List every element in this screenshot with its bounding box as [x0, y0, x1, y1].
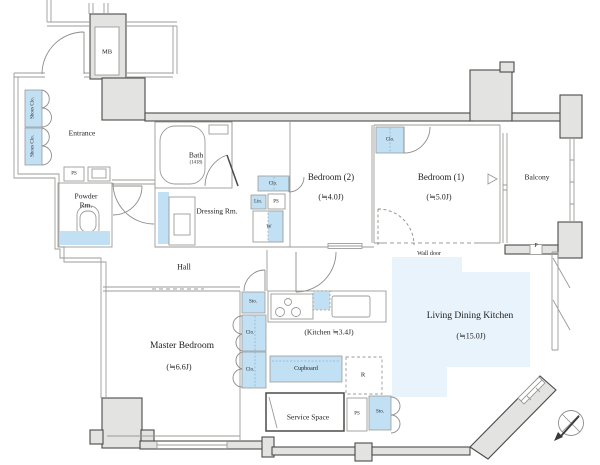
- storage-kitchen-door: [244, 270, 265, 291]
- bath-door-arc: [205, 155, 227, 186]
- label-ps-dressing: PS: [273, 200, 279, 205]
- label-powder-room-line2: Rm.: [80, 201, 93, 210]
- powder-door: [113, 186, 142, 215]
- label-storage-kitchen: Sto.: [249, 300, 257, 305]
- label-refrigerator: R: [361, 372, 366, 379]
- label-kitchen: (Kitchen ≒3.4J): [304, 328, 354, 337]
- label-ps-service: PS: [354, 412, 360, 417]
- label-closet-bedroom-1: Clo.: [386, 138, 394, 143]
- fixtures: [60, 125, 386, 394]
- floor-plan-drawing: EntrancePowderRm.BathDressing Rm.Bedroom…: [0, 0, 600, 465]
- bedroom-1-door: [378, 209, 414, 245]
- label-closet-master-1: Clo.: [246, 331, 254, 336]
- bath-shelf: [209, 125, 228, 134]
- label-linen: Lin.: [254, 200, 262, 205]
- powder-floor: [60, 231, 110, 245]
- label-bedroom-1-area: (≒5.0J): [426, 193, 451, 202]
- label-entrance: Entrance: [69, 129, 96, 138]
- closet-bedroom-1-door: [404, 127, 430, 153]
- shoes-closet-doors: [42, 90, 52, 165]
- label-bath-size: (1418): [190, 161, 203, 166]
- label-closet-dressing: Clo.: [269, 182, 277, 187]
- label-shoes-closet-1: Shoes Clo.: [31, 97, 36, 119]
- label-bath: Bath: [189, 151, 203, 160]
- north-arrow-compass-icon: [554, 411, 584, 442]
- label-powder-room-line1: Powder: [75, 192, 98, 201]
- label-master-bedroom: Master Bedroom: [150, 341, 215, 351]
- label-meter-box: MB: [102, 49, 113, 56]
- opening-direction-triangle-icon: [488, 174, 497, 184]
- entrance-door: [42, 32, 84, 74]
- label-balcony: Balcony: [525, 173, 550, 182]
- label-ldk-area: (≒15.0J): [456, 332, 485, 341]
- hall-door: [113, 183, 154, 224]
- ldk-door: [296, 252, 336, 292]
- kitchen-blue-unit: [313, 291, 330, 310]
- master-closet-doors: [233, 316, 242, 387]
- bedroom-1-balcony-window: [503, 133, 507, 243]
- label-bedroom-1: Bedroom (1): [418, 172, 464, 182]
- bath-door-leaf: [227, 155, 238, 186]
- label-bedroom-2: Bedroom (2): [308, 172, 354, 182]
- label-bedroom-2-area: (≒4.0J): [318, 193, 343, 202]
- vanity-sink: [174, 214, 190, 235]
- label-closet-master-2: Clo.: [246, 368, 254, 373]
- closet-dressing-door: [289, 177, 304, 192]
- label-cupboard: Cupboard: [294, 366, 318, 372]
- ldk-floor: [392, 257, 530, 397]
- balcony-railing: [570, 138, 574, 222]
- label-storage-service: Sto.: [376, 410, 384, 415]
- floor-plan: EntrancePowderRm.BathDressing Rm.Bedroom…: [0, 0, 600, 465]
- label-hall: Hall: [177, 263, 192, 272]
- vanity-counter: [158, 192, 169, 244]
- label-ldk: Living Dining Kitchen: [427, 311, 514, 321]
- storage-service-doors: [391, 397, 400, 433]
- label-master-bedroom-area: (≒6.6J): [166, 363, 191, 372]
- chamfer-wall: [470, 376, 556, 459]
- label-shoes-closet-2: Shoes Clo.: [31, 135, 36, 157]
- label-washer: W: [266, 224, 272, 230]
- pipes: [89, 3, 108, 14]
- sink: [332, 296, 370, 317]
- label-ps-powder: PS: [71, 172, 77, 177]
- label-dressing-room: Dressing Rm.: [196, 207, 237, 216]
- label-wall-door: Wall door: [417, 251, 441, 257]
- label-service-space: Service Space: [287, 413, 330, 422]
